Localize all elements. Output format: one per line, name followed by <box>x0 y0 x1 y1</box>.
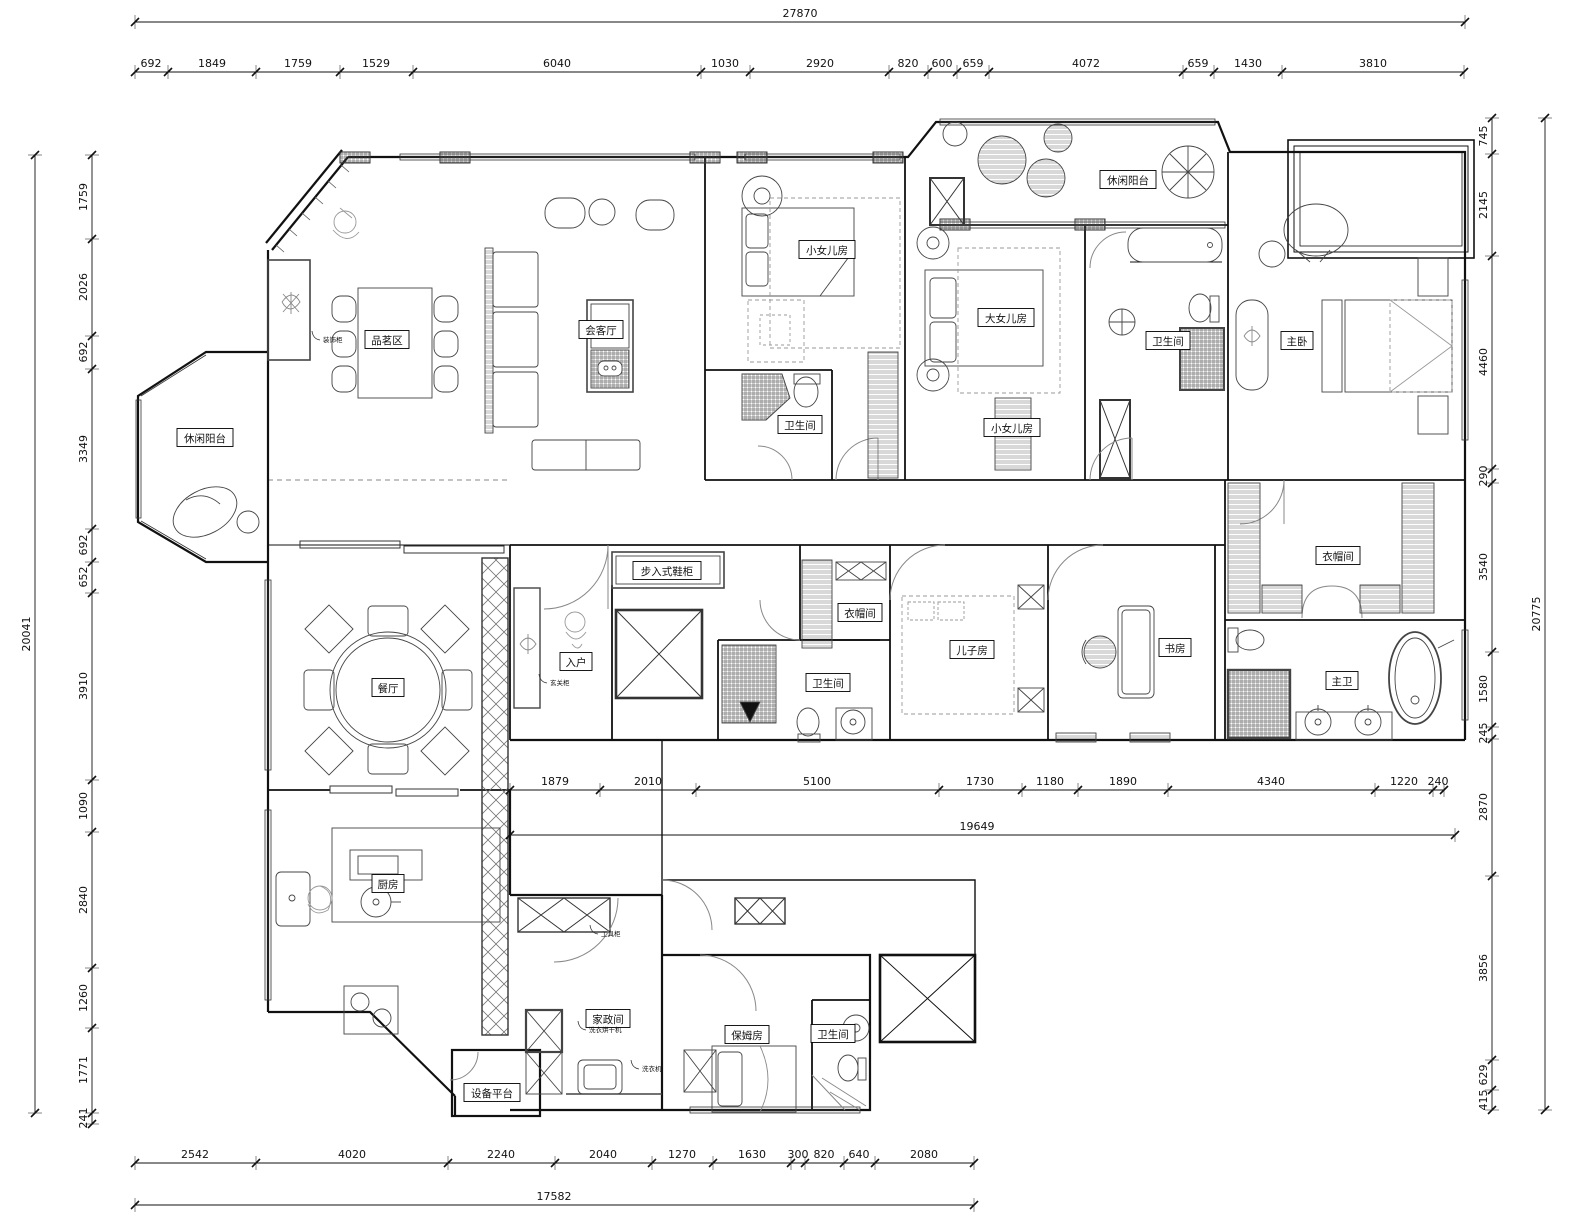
dim-value: 2840 <box>77 886 90 914</box>
dim-value: 1260 <box>77 984 90 1012</box>
dim-value: 3856 <box>1477 954 1490 982</box>
annotation-label: 玄关柜 <box>550 678 570 687</box>
room-label: 休闲阳台 <box>184 432 226 445</box>
dim-value: 245 <box>1477 723 1490 744</box>
dim-value: 820 <box>898 57 919 70</box>
dim-value: 4460 <box>1477 348 1490 376</box>
dim-value: 3540 <box>1477 553 1490 581</box>
room-label: 家政间 <box>592 1013 624 1026</box>
room-label: 儿子房 <box>956 644 988 657</box>
dim-value: 1849 <box>198 57 226 70</box>
room-label: 卫生间 <box>784 419 816 432</box>
annotation-leader <box>312 331 320 340</box>
room-label: 小女儿房 <box>991 422 1033 435</box>
dim-value: 1759 <box>284 57 312 70</box>
room-label: 大女儿房 <box>985 312 1027 325</box>
room-label: 步入式鞋柜 <box>641 565 694 578</box>
dim-value: 6040 <box>543 57 571 70</box>
dimension-lines: 2787069218491759152960401030292082060065… <box>20 7 1552 1212</box>
dim-value: 20775 <box>1530 597 1543 632</box>
annotation-leader <box>578 1021 586 1030</box>
dim-value: 2920 <box>806 57 834 70</box>
room-label: 入户 <box>566 656 587 669</box>
dim-value: 290 <box>1477 466 1490 487</box>
dim-value: 1529 <box>362 57 390 70</box>
room-label: 书房 <box>1165 642 1186 655</box>
dim-value: 5100 <box>803 775 831 788</box>
room-label: 主卫 <box>1332 676 1353 688</box>
dim-value: 2010 <box>634 775 662 788</box>
dim-value: 692 <box>77 342 90 363</box>
bed-master <box>1345 300 1452 392</box>
dim-value: 2080 <box>910 1148 938 1161</box>
dim-value: 1220 <box>1390 775 1418 788</box>
dim-value: 652 <box>77 567 90 588</box>
room-label: 卫生间 <box>1152 335 1184 348</box>
dim-value: 1270 <box>668 1148 696 1161</box>
room-labels: 休闲阳台品茗区会客厅小女儿房大女儿房休闲阳台主卧卫生间小女儿房卫生间步入式鞋柜入… <box>177 171 1360 1102</box>
dim-value: 3349 <box>77 435 90 463</box>
room-label: 卫生间 <box>812 677 844 690</box>
room-label: 衣帽间 <box>1322 550 1354 563</box>
room-label: 厨房 <box>378 878 399 891</box>
dim-value: 2026 <box>77 273 90 301</box>
dim-value: 241 <box>77 1108 90 1129</box>
dim-value: 659 <box>963 57 984 70</box>
dim-value: 415 <box>1477 1090 1490 1111</box>
annotation-leader <box>631 1060 639 1069</box>
dim-value: 820 <box>814 1148 835 1161</box>
dim-value: 1430 <box>1234 57 1262 70</box>
room-label: 设备平台 <box>471 1087 513 1100</box>
dim-value: 2040 <box>589 1148 617 1161</box>
dim-value: 659 <box>1188 57 1209 70</box>
room-label: 衣帽间 <box>844 607 876 620</box>
dim-value: 2145 <box>1477 191 1490 219</box>
dim-value: 2870 <box>1477 793 1490 821</box>
dim-value: 1771 <box>77 1056 90 1084</box>
annotation-label: 洗衣机 <box>642 1064 662 1073</box>
dim-value: 17582 <box>537 1190 572 1203</box>
dim-value: 629 <box>1477 1065 1490 1086</box>
desk <box>1118 606 1154 698</box>
room-label: 保姆房 <box>731 1029 763 1042</box>
dim-value: 1630 <box>738 1148 766 1161</box>
dim-value: 692 <box>77 535 90 556</box>
annotation-label: 装饰柜 <box>323 335 343 344</box>
kitchen-island <box>332 828 500 922</box>
dim-value: 745 <box>1477 126 1490 147</box>
dim-value: 3810 <box>1359 57 1387 70</box>
dim-value: 1730 <box>966 775 994 788</box>
annotation-label: 洗衣烘干机 <box>589 1025 622 1034</box>
dim-value: 1759 <box>77 183 90 211</box>
room-label: 休闲阳台 <box>1107 174 1149 187</box>
dim-value: 692 <box>141 57 162 70</box>
room-label: 餐厅 <box>378 682 399 695</box>
dim-value: 640 <box>849 1148 870 1161</box>
room-label: 品茗区 <box>371 335 403 347</box>
dim-value: 1030 <box>711 57 739 70</box>
room-label: 主卧 <box>1287 335 1309 348</box>
annotation-label: 工具柜 <box>601 929 621 938</box>
bed-nanny <box>712 1046 796 1112</box>
room-label: 卫生间 <box>817 1028 849 1041</box>
lounge-chair <box>165 477 246 548</box>
dim-value: 1180 <box>1036 775 1064 788</box>
floor-plan-canvas: 2787069218491759152960401030292082060065… <box>0 0 1584 1227</box>
dim-value: 1580 <box>1477 675 1490 703</box>
floor-plan-drawing: 2787069218491759152960401030292082060065… <box>0 0 1584 1227</box>
dim-value: 240 <box>1428 775 1449 788</box>
dim-value: 2240 <box>487 1148 515 1161</box>
dim-value: 4072 <box>1072 57 1100 70</box>
dim-value: 20041 <box>20 617 33 652</box>
dim-value: 3910 <box>77 672 90 700</box>
dim-value: 600 <box>932 57 953 70</box>
dim-value: 300 <box>788 1148 809 1161</box>
room-label: 小女儿房 <box>806 244 848 257</box>
media-unit <box>587 300 633 392</box>
dim-value: 1879 <box>541 775 569 788</box>
furniture <box>165 122 1454 1112</box>
dim-value: 19649 <box>960 820 995 833</box>
dim-value: 4020 <box>338 1148 366 1161</box>
dim-value: 1890 <box>1109 775 1137 788</box>
hatch-areas <box>276 152 1130 1035</box>
dim-value: 1090 <box>77 792 90 820</box>
dim-value: 4340 <box>1257 775 1285 788</box>
dim-value: 27870 <box>783 7 818 20</box>
dim-value: 2542 <box>181 1148 209 1161</box>
room-label: 会客厅 <box>585 324 617 337</box>
